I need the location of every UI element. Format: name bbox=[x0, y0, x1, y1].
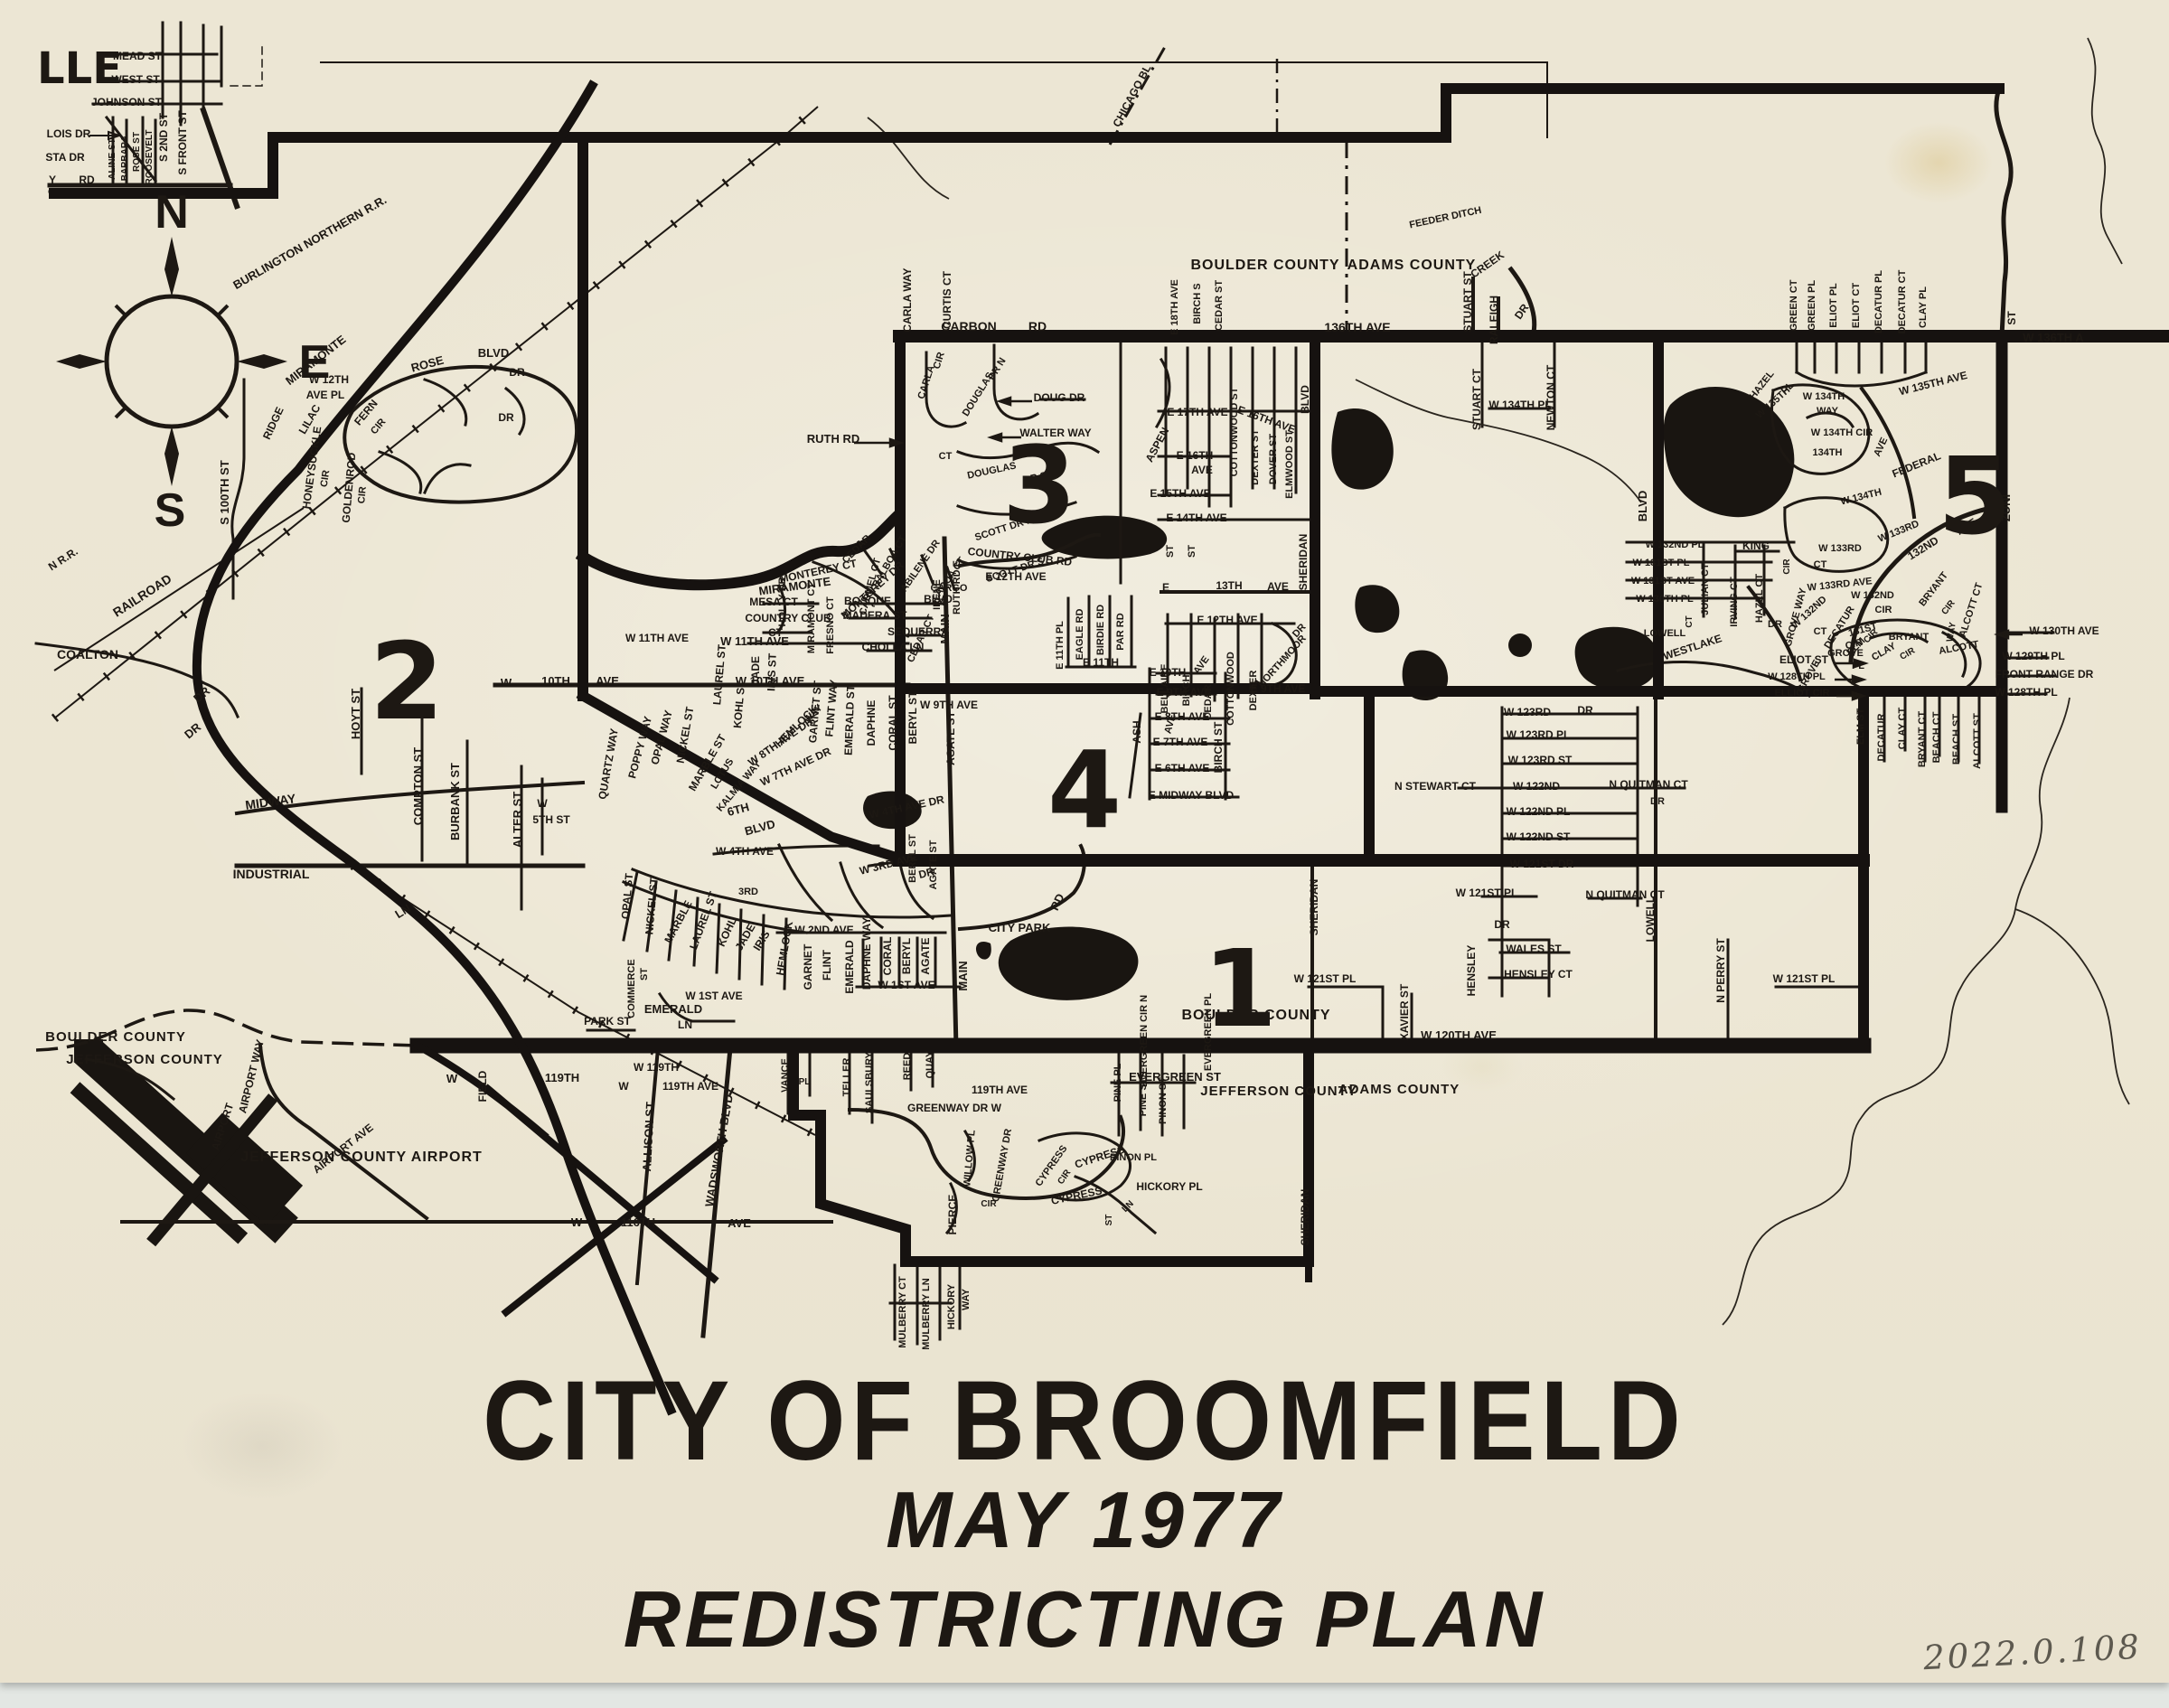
street-label: MULBERRY LN bbox=[921, 1278, 932, 1350]
street-label: CIR bbox=[319, 469, 333, 487]
street-label: AGATE ST bbox=[944, 710, 957, 765]
street-label: QUAY bbox=[925, 1050, 935, 1078]
street-label: ST bbox=[639, 968, 650, 981]
street-label: S 2ND ST bbox=[157, 112, 170, 162]
street-label: STUART ST bbox=[1461, 271, 1474, 333]
street-label: DECATUR CT bbox=[1897, 269, 1908, 333]
street-label: STUART CT bbox=[1470, 368, 1483, 430]
street-label: REED bbox=[902, 1053, 913, 1081]
street-label: DOVER ST bbox=[1268, 434, 1279, 485]
street-label: COTTONWOOD bbox=[1225, 652, 1236, 726]
street-label: W 132ND PL bbox=[1646, 540, 1704, 550]
street-label: DR bbox=[182, 719, 203, 741]
street-label: ELMWOOD ST bbox=[1284, 430, 1295, 499]
street-label: CIR bbox=[1875, 605, 1892, 615]
county-label: JEFFERSON COUNTY bbox=[1200, 1084, 1357, 1099]
street-label: BURBANK ST bbox=[448, 763, 462, 840]
street-label: DR bbox=[498, 411, 514, 424]
street-label: IRENE bbox=[932, 579, 943, 610]
street-label: PARK ST bbox=[584, 1015, 631, 1028]
street-label: SHERIDAN bbox=[1297, 534, 1310, 591]
street-label: BEACH ST bbox=[1951, 714, 1962, 765]
street-label: E 9TH AVE bbox=[1157, 686, 1212, 699]
street-label: 3RD bbox=[738, 887, 758, 897]
street-label: CARLA WAY bbox=[901, 267, 914, 332]
street-label: E 9TH AVE bbox=[1251, 682, 1306, 695]
street-label: ST bbox=[1165, 545, 1176, 558]
map-canvas: N E S LLE MEAD STWEST STJOHNSON STLOIS D… bbox=[0, 0, 2169, 1708]
street-label: BERYL bbox=[900, 938, 913, 974]
street-label: RUTH RD bbox=[807, 432, 860, 446]
street-label: EVERGREEN ST bbox=[1129, 1070, 1221, 1084]
water-layer bbox=[57, 387, 1795, 1262]
street-label: PL bbox=[1852, 661, 1864, 671]
street-label: PINON ST bbox=[1158, 1077, 1169, 1124]
street-label: AVE PL bbox=[306, 389, 344, 401]
street-label: COMPTON ST bbox=[411, 747, 425, 825]
street-label: EMERALD ST bbox=[842, 684, 858, 755]
street-label: BRYANT CT bbox=[1917, 711, 1928, 767]
street-label: RUTH RD E bbox=[952, 560, 962, 615]
street-label: VANCE bbox=[780, 1058, 791, 1093]
street-label: DR bbox=[1577, 704, 1593, 717]
street-label: PL bbox=[799, 1077, 811, 1087]
street-label: BIRDIE RD bbox=[1095, 605, 1106, 655]
street-label: RD bbox=[79, 174, 95, 186]
county-label: ADAMS COUNTY bbox=[1347, 258, 1477, 273]
street-label: E 12TH AVE bbox=[1197, 614, 1257, 626]
street-label: W 130TH AVE bbox=[2029, 624, 2099, 637]
street-label: GREEN CT bbox=[1789, 279, 1799, 331]
street-label: W bbox=[571, 1215, 583, 1229]
street-label: AVE bbox=[728, 1216, 751, 1230]
county-label: BOULDER COUNTY bbox=[45, 1029, 186, 1045]
street-label: 13TH bbox=[1216, 579, 1242, 592]
pond bbox=[1331, 408, 1393, 490]
street-label: WALES ST bbox=[1506, 943, 1562, 955]
street-label: BARBARA bbox=[120, 136, 130, 182]
street-label: IRIS ST bbox=[765, 652, 778, 691]
street-label: 116TH bbox=[621, 1215, 655, 1229]
street-label: ELIOT ST bbox=[1779, 653, 1829, 666]
creek-layer bbox=[868, 38, 2129, 1325]
street-label: W 134TH PL bbox=[1488, 399, 1551, 411]
street-label: E 16TH bbox=[1177, 449, 1214, 462]
street-label: DEXTER ST bbox=[1250, 429, 1261, 485]
street-label: COUNTRY CLUB bbox=[745, 612, 831, 624]
street-label: W bbox=[537, 797, 548, 810]
street-label: W 121ST DR bbox=[1510, 858, 1574, 870]
street-label: CORAL bbox=[881, 937, 894, 976]
scanned-map-page: N E S LLE MEAD STWEST STJOHNSON STLOIS D… bbox=[0, 0, 2169, 1708]
street-label: LOWELL bbox=[1644, 896, 1657, 943]
street-label: MULBERRY CT bbox=[897, 1276, 908, 1348]
street-label: W bbox=[446, 1072, 458, 1085]
street-label: 119TH bbox=[545, 1071, 579, 1084]
street-label: MIRAMONT CT bbox=[806, 583, 817, 653]
district-number: 4 bbox=[1047, 727, 1122, 852]
street-label: EMERALD bbox=[644, 1002, 702, 1016]
street-label: JADE bbox=[749, 656, 762, 685]
street-label: WAY bbox=[1945, 622, 1958, 643]
district-number: 2 bbox=[370, 619, 444, 744]
street-label: SHERIDAN bbox=[1308, 879, 1320, 936]
street-label: E 7TH AVE bbox=[1153, 736, 1208, 748]
street-label: N PERRY ST bbox=[1714, 938, 1727, 1003]
street-label: E 11TH PL bbox=[1055, 621, 1066, 670]
street-label: W 129TH PL bbox=[2002, 650, 2064, 662]
street-label: BERYL ST bbox=[907, 834, 918, 883]
street-label: ELIOT PL bbox=[1828, 283, 1839, 328]
street-label: TELLER bbox=[841, 1058, 852, 1097]
boundary-dashes bbox=[36, 45, 2011, 1050]
street-label: LAUREL ST bbox=[710, 643, 728, 706]
street-label: SAULSBURY bbox=[864, 1051, 875, 1113]
street-label: W bbox=[618, 1080, 629, 1093]
street-label: GARNET bbox=[802, 943, 814, 990]
street-label: ALTER ST bbox=[511, 792, 524, 849]
street-label: E 18TH AVE bbox=[1169, 279, 1180, 335]
street-label: HICKORY bbox=[946, 1283, 957, 1329]
street-label: W 122ND PL bbox=[1507, 805, 1571, 818]
street-label: CT bbox=[1685, 615, 1695, 627]
street-label: RD bbox=[1028, 319, 1047, 333]
street-label: AVE bbox=[596, 674, 619, 688]
street-label: W 1ST AVE bbox=[878, 979, 934, 991]
street-label: W 123RD PL bbox=[1507, 728, 1571, 741]
street-label: DAPHNE WAY bbox=[860, 917, 873, 990]
street-label: CIR bbox=[932, 351, 947, 371]
street-label: W 132ND bbox=[1851, 590, 1894, 601]
street-label: W 121ST PL bbox=[1294, 972, 1357, 985]
street-label: CEDAR CT bbox=[906, 613, 937, 664]
street-label: AIRPORT AVE bbox=[310, 1121, 375, 1176]
street-label: W 123RD bbox=[1504, 706, 1551, 718]
street-label: BURLINGTON NORTHERN R.R. bbox=[230, 192, 389, 292]
street-label: CHICAGO BL bbox=[1110, 62, 1153, 129]
street-label: AVE bbox=[1267, 580, 1289, 593]
street-label: CIR bbox=[1056, 1168, 1074, 1187]
street-label: CARLA bbox=[915, 364, 936, 400]
street-label: E 12TH AVE bbox=[985, 570, 1046, 583]
street-label: MAIN bbox=[938, 614, 952, 643]
street-label: DR bbox=[509, 366, 525, 379]
pond bbox=[1355, 585, 1399, 633]
street-label: ALCOTT CT bbox=[1958, 581, 1986, 638]
street-label: AGATE bbox=[919, 937, 932, 974]
street-label: E bbox=[1162, 581, 1169, 594]
street-label: CIR bbox=[981, 1199, 997, 1209]
street-label: BLVD bbox=[743, 817, 776, 838]
street-label: DECATUR bbox=[1876, 713, 1887, 761]
street-label: FEEDER DITCH bbox=[1408, 205, 1482, 231]
street-label: RALEIGH bbox=[1488, 296, 1500, 344]
street-label: 10TH bbox=[541, 674, 570, 688]
street-label: W 134TH bbox=[1803, 391, 1845, 402]
street-label: BERYL ST bbox=[906, 690, 919, 744]
street-label: GREEN PL bbox=[1807, 280, 1817, 332]
street-label: JULIAN CT bbox=[1700, 563, 1711, 615]
railroad-line bbox=[352, 866, 815, 1135]
street-label: DAPHNE bbox=[865, 700, 878, 746]
street-label: W 9TH AVE bbox=[920, 699, 978, 711]
street-label: HAZEL CT bbox=[1754, 574, 1765, 623]
street-label: E 11TH bbox=[1083, 656, 1119, 669]
street-label: ELLIOT CIR bbox=[1774, 688, 1829, 699]
street-label: GARNET ST bbox=[806, 680, 824, 744]
street-label: LN bbox=[1121, 1199, 1136, 1215]
street-label: FIELD bbox=[476, 1070, 489, 1102]
street-label: QUARTZ WAY bbox=[596, 727, 621, 801]
street-label: CIR bbox=[369, 417, 388, 436]
street-label: W 121ST PL bbox=[1773, 972, 1836, 985]
street-label: EAGLE RD bbox=[1075, 609, 1085, 661]
street-label: DR bbox=[1494, 918, 1510, 931]
street-label: N R.R. bbox=[46, 545, 80, 573]
street-label: W 135TH AVE bbox=[1898, 369, 1968, 398]
street-label: ELM ST bbox=[1855, 709, 1866, 746]
street-label: CIR bbox=[1939, 598, 1958, 617]
street-label: W bbox=[501, 676, 512, 690]
zuni-st-road bbox=[1996, 89, 2011, 336]
street-label: W 131ST AVE bbox=[1631, 576, 1695, 587]
street-label: STA DR bbox=[45, 151, 85, 164]
street-label: COTTONWOOD ST bbox=[1229, 387, 1240, 476]
street-label: S FRONT ST bbox=[176, 110, 189, 175]
street-label: ROSE ST bbox=[132, 132, 142, 172]
street-label: BIRCH S bbox=[1192, 283, 1203, 324]
street-label: S 100TH ST bbox=[218, 460, 231, 525]
street-label: 5TH ST bbox=[532, 813, 570, 826]
street-label: W 128TH PL bbox=[1768, 671, 1826, 682]
district-number: 1 bbox=[1203, 926, 1277, 1051]
street-label: BLVD bbox=[1636, 491, 1649, 521]
street-label: HENSLEY CT bbox=[1504, 968, 1573, 981]
street-label: SHERIDAN bbox=[1299, 1189, 1311, 1246]
street-label: CYPRESS bbox=[1050, 1184, 1103, 1207]
street-label: HOYT ST bbox=[349, 689, 362, 739]
street-label: CITY PARK bbox=[989, 921, 1051, 934]
street-label: W 136TH A bbox=[2023, 331, 2084, 344]
street-label: CLAY bbox=[1870, 641, 1899, 663]
street-label: W 1ST AVE bbox=[685, 990, 742, 1002]
street-label: NICKEL ST bbox=[643, 877, 661, 935]
street-label: CLAY PL bbox=[1918, 286, 1929, 328]
street-label: ST bbox=[1104, 1215, 1114, 1226]
street-label: W 134TH CIR bbox=[1811, 427, 1873, 438]
map-title: CITY OF BROOMFIELD bbox=[483, 1357, 1686, 1484]
street-label: ELIOT CT bbox=[1851, 283, 1862, 328]
street-label: W 133RD bbox=[1818, 543, 1862, 554]
street-label: IRVING CT bbox=[1729, 577, 1740, 627]
street-label: FLINT bbox=[821, 949, 833, 981]
street-label: BIRCH ST bbox=[1212, 721, 1225, 773]
county-label: BOULDER COUNTY bbox=[1190, 258, 1339, 273]
street-label: CIR bbox=[1899, 645, 1918, 662]
street-label: DECATUR PL bbox=[1873, 270, 1884, 333]
street-label: FLINT WAY bbox=[822, 679, 840, 737]
street-label: W 12TH bbox=[309, 373, 349, 386]
street-label: PAR RD bbox=[1115, 613, 1126, 650]
street-label: E MIDWAY BLVD bbox=[1149, 789, 1235, 802]
street-label: E 8TH AVE bbox=[1155, 710, 1210, 723]
railroad-ties bbox=[352, 866, 815, 1135]
street-label: W 11TH AVE bbox=[720, 634, 789, 648]
county-label: ADAMS COUNTY bbox=[1338, 1082, 1460, 1097]
district-number: 5 bbox=[1938, 434, 2012, 558]
street-label: ALINE ST bbox=[108, 138, 117, 180]
street-label: PINON PL bbox=[1110, 1152, 1157, 1163]
street-label: PIERCE bbox=[946, 1195, 959, 1235]
street-label: W 2ND AVE bbox=[794, 924, 853, 936]
inset-city-label: LLE bbox=[37, 43, 122, 94]
pond bbox=[999, 927, 1139, 1000]
street-label: 119TH AVE bbox=[662, 1080, 718, 1093]
street-label: 134TH bbox=[1812, 447, 1842, 458]
street-label: E 10TH bbox=[1150, 666, 1187, 679]
street-label: HENSLEY bbox=[1465, 945, 1478, 997]
map-subtitle-date: MAY 1977 bbox=[886, 1475, 1283, 1564]
street-label: ST bbox=[2005, 311, 2018, 325]
street-label: AVE bbox=[1191, 464, 1213, 476]
street-label: E 14TH AVE bbox=[1166, 511, 1226, 524]
street-label: ROOSEVELT bbox=[145, 130, 155, 185]
street-label: DR bbox=[1650, 796, 1665, 807]
street-label: GOLDENROD bbox=[340, 452, 359, 523]
street-label: CARBON bbox=[941, 319, 996, 333]
map-subtitle-plan: REDISTRICTING PLAN bbox=[624, 1574, 1545, 1664]
street-label: FRONT RANGE DR bbox=[1995, 668, 2094, 680]
street-label: ST bbox=[1187, 545, 1197, 558]
county-label: JEFFERSON COUNTY AIRPORT bbox=[240, 1150, 483, 1165]
street-label: ASPEN bbox=[1143, 426, 1172, 465]
street-label: COALTON bbox=[57, 647, 118, 662]
street-label: N QUITMAN CT bbox=[1609, 778, 1688, 791]
street-label: Y bbox=[49, 174, 56, 186]
street-label: BRYANT bbox=[1889, 632, 1930, 643]
street-label: E 15TH AVE bbox=[1150, 487, 1210, 500]
street-label: CT bbox=[939, 451, 953, 462]
street-label: DR N bbox=[986, 356, 1008, 382]
street-label: GREENWAY DR W bbox=[907, 1102, 1002, 1114]
street-label: MAIN bbox=[956, 961, 970, 990]
street-label: N STEWART CT bbox=[1394, 780, 1477, 793]
street-label: ALCOTT ST bbox=[1972, 713, 1983, 769]
street-label: W 131ST PL bbox=[1633, 558, 1690, 568]
street-label: CLAY CT bbox=[1897, 707, 1908, 749]
street-label: HICKORY PL bbox=[1136, 1180, 1202, 1193]
street-label: W 122ND ST bbox=[1507, 831, 1571, 843]
street-label: BLVD bbox=[478, 346, 509, 360]
street-label: MESA CT bbox=[749, 596, 798, 608]
street-label: CIR bbox=[356, 486, 369, 504]
street-label: E 6TH AVE bbox=[1155, 762, 1210, 774]
street-label: DOUG DR bbox=[1034, 391, 1085, 404]
street-label: INDUSTRIAL bbox=[233, 867, 310, 881]
street-label: WAY bbox=[1817, 406, 1839, 417]
street-label: EMERALD bbox=[843, 940, 856, 994]
street-label: W 130TH PL bbox=[1636, 594, 1694, 605]
street-label: W 123RD ST bbox=[1508, 754, 1573, 766]
street-label: 136TH AVE bbox=[1324, 320, 1390, 334]
title-block: CITY OF BROOMFIELD MAY 1977 REDISTRICTIN… bbox=[483, 1357, 1686, 1664]
street-label: W 122ND bbox=[1513, 780, 1560, 793]
pond bbox=[976, 942, 991, 960]
street-label: WAY bbox=[961, 1288, 972, 1310]
street-label: LOWELL bbox=[1644, 628, 1686, 639]
street-label: W 119TH bbox=[634, 1061, 679, 1074]
street-label: NEWTON CT bbox=[1545, 364, 1557, 430]
street-label: ASH bbox=[1131, 720, 1143, 743]
street-label: LN bbox=[678, 1018, 692, 1031]
street-label: AGATE ST bbox=[928, 840, 939, 889]
compass-n: N bbox=[155, 186, 189, 239]
street-label: PINE PL bbox=[1113, 1063, 1123, 1102]
street-label: CEDAR ST bbox=[1214, 280, 1225, 332]
street-label: LOIS DR bbox=[47, 127, 91, 140]
street-label: COMMERCE bbox=[626, 959, 637, 1018]
street-label: CORAL ST bbox=[887, 695, 899, 751]
street-label: W 120TH AVE bbox=[1421, 1028, 1497, 1042]
street-label: ALLISON ST bbox=[640, 1102, 657, 1172]
street-label: W 121ST PL bbox=[1456, 887, 1518, 899]
county-label: JEFFERSON COUNTY bbox=[66, 1052, 223, 1067]
street-label: MEAD ST bbox=[113, 50, 163, 62]
street-label: W 11TH AVE bbox=[625, 632, 689, 644]
street-label: XAVIER ST bbox=[1398, 983, 1411, 1040]
street-label: BLVD bbox=[1299, 385, 1311, 414]
district-number: 3 bbox=[1002, 423, 1076, 548]
street-label: RIDGE bbox=[260, 405, 286, 441]
street-label: KING bbox=[1742, 540, 1770, 552]
street-label: BEACH CT bbox=[1931, 711, 1942, 763]
street-label: E 17TH AVE bbox=[1167, 406, 1227, 418]
street-label: JOHNSON ST bbox=[91, 96, 163, 108]
compass-s: S bbox=[155, 484, 186, 537]
street-label: DR bbox=[1768, 619, 1782, 630]
pond bbox=[1508, 633, 1532, 657]
street-label: FRESNO CT bbox=[825, 596, 836, 654]
street-label: CT bbox=[1814, 626, 1827, 637]
street-label: CIR bbox=[1782, 558, 1792, 575]
street-label: 119TH AVE bbox=[972, 1084, 1028, 1096]
street-label: AVE bbox=[1872, 436, 1890, 458]
street-label: OPAL ST bbox=[619, 872, 635, 920]
street-label: W 128TH PL bbox=[1995, 686, 2057, 699]
street-label: WEST ST bbox=[111, 73, 160, 86]
street-label: W 4TH AVE bbox=[716, 845, 774, 858]
street-label: CT bbox=[1814, 559, 1827, 570]
street-label: GREENWAY DR bbox=[991, 1128, 1014, 1203]
